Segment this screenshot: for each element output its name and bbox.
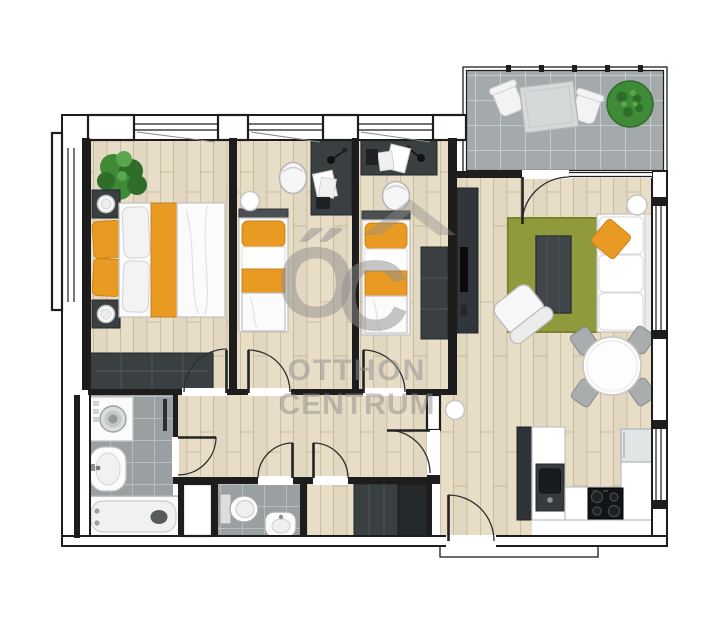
toilet	[220, 494, 258, 524]
floor-plan-svg: Ő C OTTHON CENTRUM	[0, 0, 708, 619]
tv	[460, 247, 468, 292]
wall-b3-living	[448, 138, 457, 390]
window-pier	[433, 115, 466, 140]
window-pier	[218, 115, 248, 140]
double-bed	[119, 203, 225, 317]
window-pier	[323, 115, 358, 140]
bed-pillow	[122, 206, 151, 258]
balcony-table	[519, 81, 578, 133]
shaft	[183, 484, 212, 536]
bathroom-sink	[86, 447, 126, 491]
washing-machine	[90, 397, 133, 441]
pillow-orange	[92, 258, 122, 296]
desk	[361, 137, 437, 175]
towel-rail	[163, 399, 167, 431]
bidet-sink	[265, 512, 296, 537]
floor-plan-image: Ő C OTTHON CENTRUM	[0, 0, 708, 619]
storage	[354, 484, 427, 537]
bathtub-drain	[151, 510, 168, 524]
wardrobe	[90, 353, 213, 390]
desk-chair	[280, 163, 307, 194]
bed-pillow	[122, 261, 150, 313]
window-pier	[88, 115, 134, 140]
duvet	[177, 203, 225, 317]
bottom-wall	[62, 536, 667, 546]
railing-post	[539, 65, 544, 72]
watermark-logo-c: C	[337, 240, 409, 352]
railing-post	[638, 65, 643, 72]
dining-table	[583, 337, 641, 395]
ceiling-lamp	[241, 192, 260, 211]
tv-cabinet	[457, 188, 478, 333]
kitchen-counter	[621, 461, 654, 520]
bed-runner-orange	[151, 203, 178, 317]
railing-post	[572, 65, 577, 72]
watermark-line1: OTTHON	[288, 354, 427, 387]
watermark-line2: CENTRUM	[279, 388, 436, 421]
railing-post	[506, 65, 511, 72]
fridge	[621, 429, 654, 462]
bathtub	[85, 496, 182, 537]
desk	[311, 138, 352, 215]
sofa	[590, 214, 653, 332]
tall-cabinet	[517, 427, 532, 520]
ceiling-lamp	[627, 195, 647, 215]
wardrobe	[421, 247, 448, 339]
cooktop	[588, 488, 623, 519]
ceiling-lamp	[446, 401, 465, 420]
pillow-orange	[92, 220, 123, 259]
wardrobe	[354, 484, 398, 537]
wardrobe-dark	[398, 484, 427, 537]
ledge	[52, 133, 62, 310]
wall-b1-b2	[229, 138, 237, 390]
railing-post	[605, 65, 610, 72]
living-top-wall	[457, 171, 522, 178]
right-wall	[652, 171, 667, 546]
balcony-plant	[607, 81, 653, 127]
kitchen-sink	[536, 464, 564, 511]
